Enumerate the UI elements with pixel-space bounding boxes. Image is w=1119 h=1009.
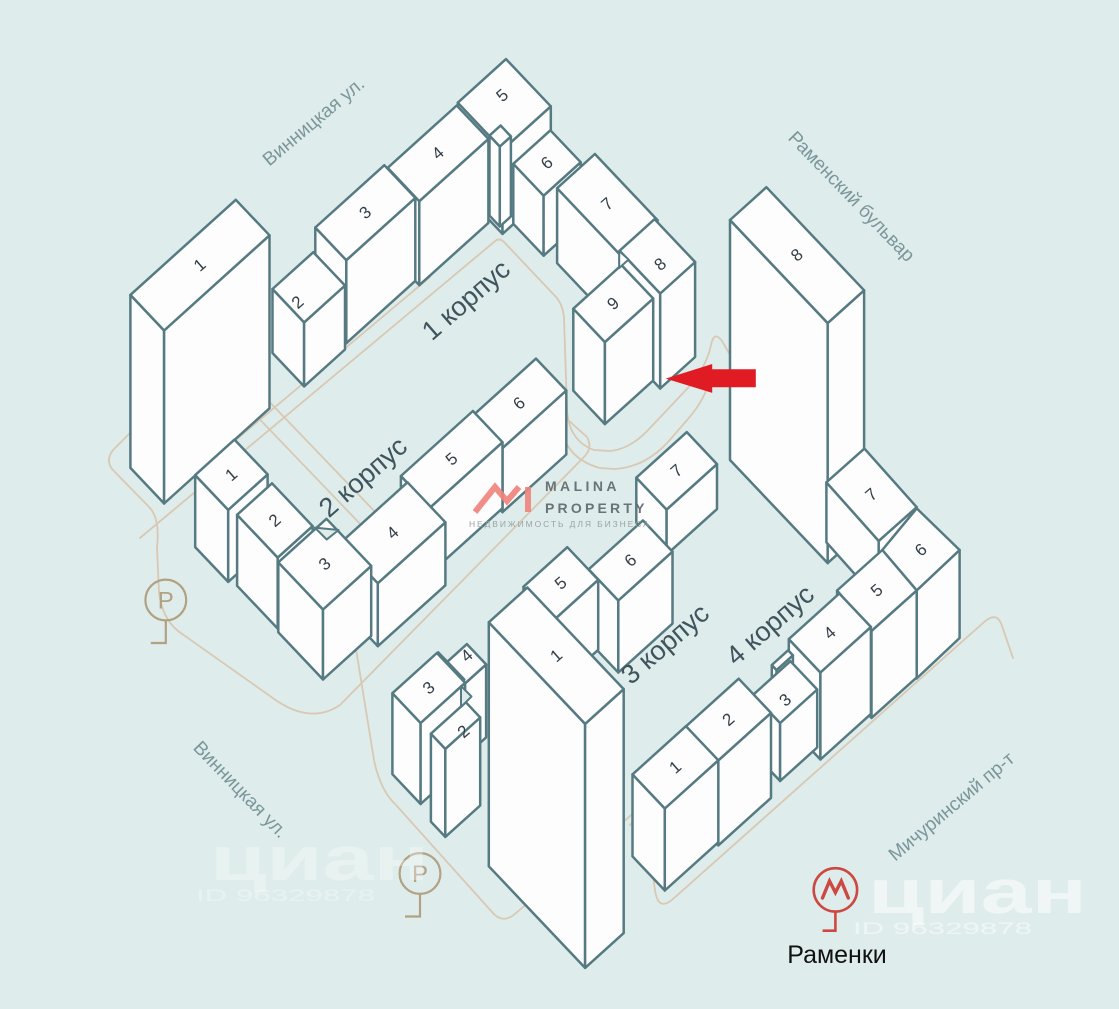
svg-text:ID 96329878: ID 96329878 (196, 886, 375, 905)
svg-text:ID 96329878: ID 96329878 (853, 919, 1032, 938)
svg-text:НЕДВИЖИМОСТЬ ДЛЯ БИЗНЕСА: НЕДВИЖИМОСТЬ ДЛЯ БИЗНЕСА (469, 519, 651, 529)
svg-text:P: P (158, 588, 174, 615)
svg-text:циан: циан (210, 825, 429, 894)
svg-text:PROPERTY: PROPERTY (545, 500, 648, 516)
svg-text:циан: циан (868, 858, 1087, 927)
svg-text:Раменки: Раменки (787, 941, 887, 969)
svg-text:MALINA: MALINA (545, 478, 620, 494)
